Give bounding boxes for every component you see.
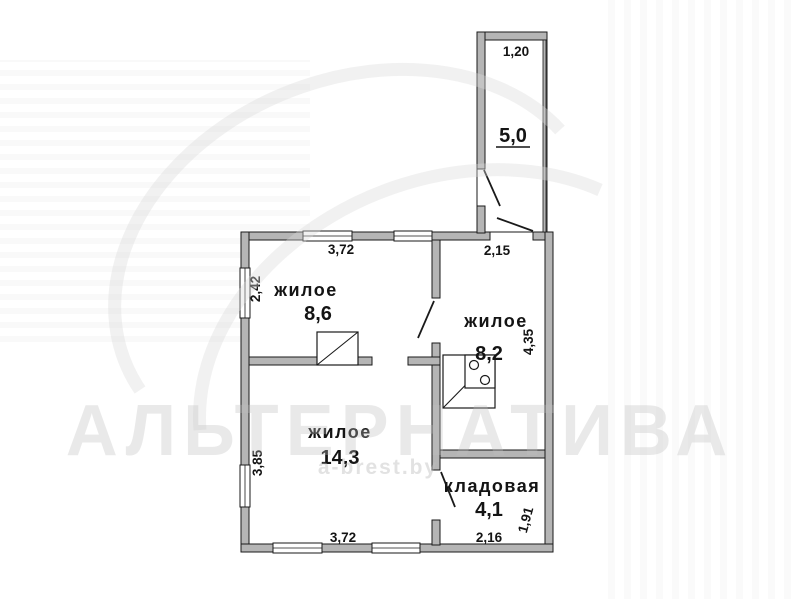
room-living2-name: жилое	[463, 311, 528, 331]
room-living1-name: жилое	[273, 280, 338, 300]
dim-room4-width: 2,16	[476, 530, 503, 545]
window-bottom-2	[372, 543, 420, 553]
room-living2-area: 8,2	[475, 343, 503, 365]
dim-room2-width: 2,15	[484, 243, 511, 258]
dim-room1-width: 3,72	[328, 242, 354, 257]
dim-room3-width: 3,72	[330, 530, 356, 545]
background-texture-right	[600, 0, 800, 599]
window-top-2	[394, 231, 432, 241]
dim-room2-height: 4,35	[521, 328, 536, 355]
veranda-area: 5,0	[499, 125, 527, 147]
furnace-symbol	[317, 332, 358, 365]
room-storage-name: кладовая	[444, 476, 540, 496]
floorplan-canvas: 1,20 3,72 2,15 2,42 4,35 3,85 1,91 3,72 …	[0, 0, 800, 599]
window-left-2	[240, 465, 250, 507]
room-living1-area: 8,6	[304, 303, 332, 325]
watermark-site: a-brest.by	[318, 456, 438, 479]
room-storage-area: 4,1	[475, 499, 503, 521]
window-bottom-1	[273, 543, 322, 553]
dim-veranda-width: 1,20	[503, 44, 529, 59]
